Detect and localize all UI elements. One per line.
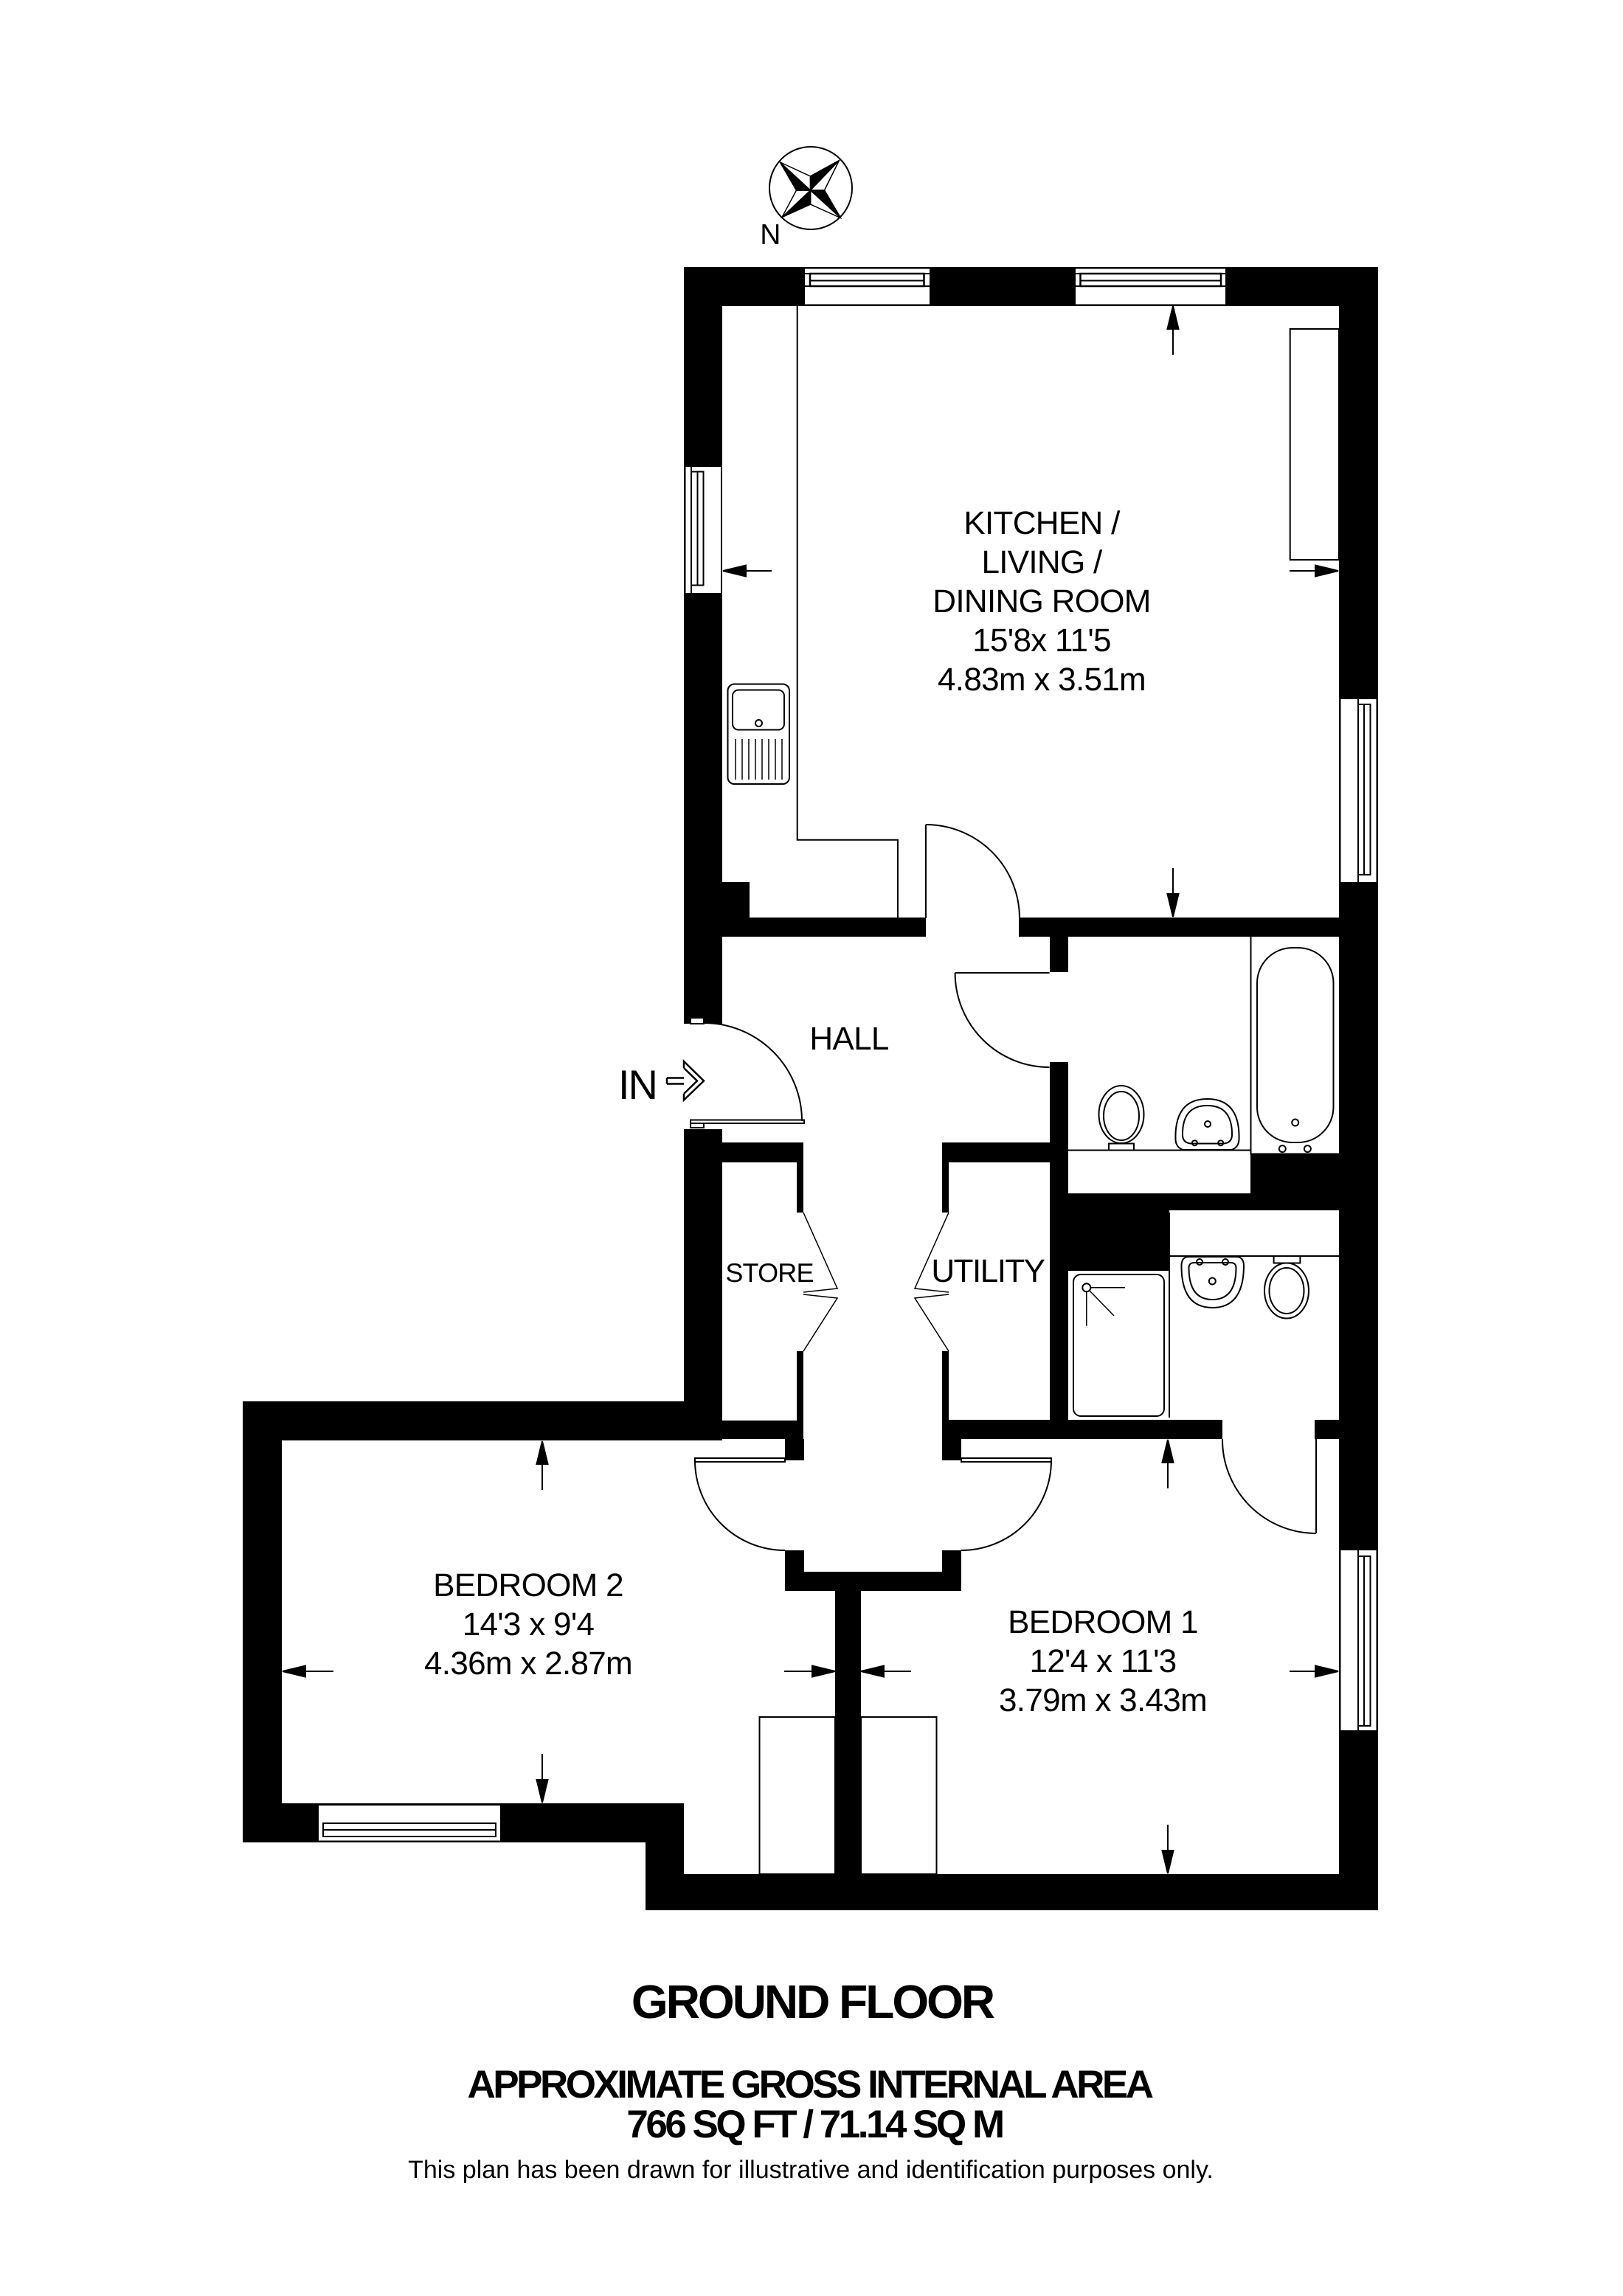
svg-text:APPROXIMATE GROSS INTERNAL ARE: APPROXIMATE GROSS INTERNAL AREA [467, 2063, 1152, 2106]
svg-text:4.83m x 3.51m: 4.83m x 3.51m [938, 662, 1146, 698]
svg-text:IN: IN [618, 1061, 657, 1108]
svg-text:766 SQ FT / 71.14 SQ M: 766 SQ FT / 71.14 SQ M [626, 2103, 1003, 2146]
svg-text:N: N [760, 219, 780, 251]
svg-text:12'4 x 11'3: 12'4 x 11'3 [1029, 1643, 1176, 1679]
svg-text:GROUND FLOOR: GROUND FLOOR [631, 1975, 994, 2028]
svg-text:LIVING /: LIVING / [981, 544, 1103, 580]
svg-text:BEDROOM 2: BEDROOM 2 [433, 1567, 623, 1603]
svg-text:BEDROOM 1: BEDROOM 1 [1008, 1604, 1198, 1640]
svg-text:3.79m x 3.43m: 3.79m x 3.43m [999, 1682, 1207, 1718]
svg-text:HALL: HALL [809, 1021, 888, 1057]
svg-text:STORE: STORE [725, 1258, 813, 1288]
svg-text:4.36m x 2.87m: 4.36m x 2.87m [424, 1645, 632, 1682]
svg-text:14'3 x 9'4: 14'3 x 9'4 [463, 1606, 595, 1643]
svg-text:DINING ROOM: DINING ROOM [932, 583, 1150, 620]
svg-text:KITCHEN /: KITCHEN / [963, 505, 1121, 541]
svg-text:UTILITY: UTILITY [931, 1253, 1045, 1289]
svg-text:15'8x 11'5: 15'8x 11'5 [972, 622, 1111, 659]
svg-text:This plan has been drawn for i: This plan has been drawn for illustrativ… [408, 2156, 1214, 2184]
